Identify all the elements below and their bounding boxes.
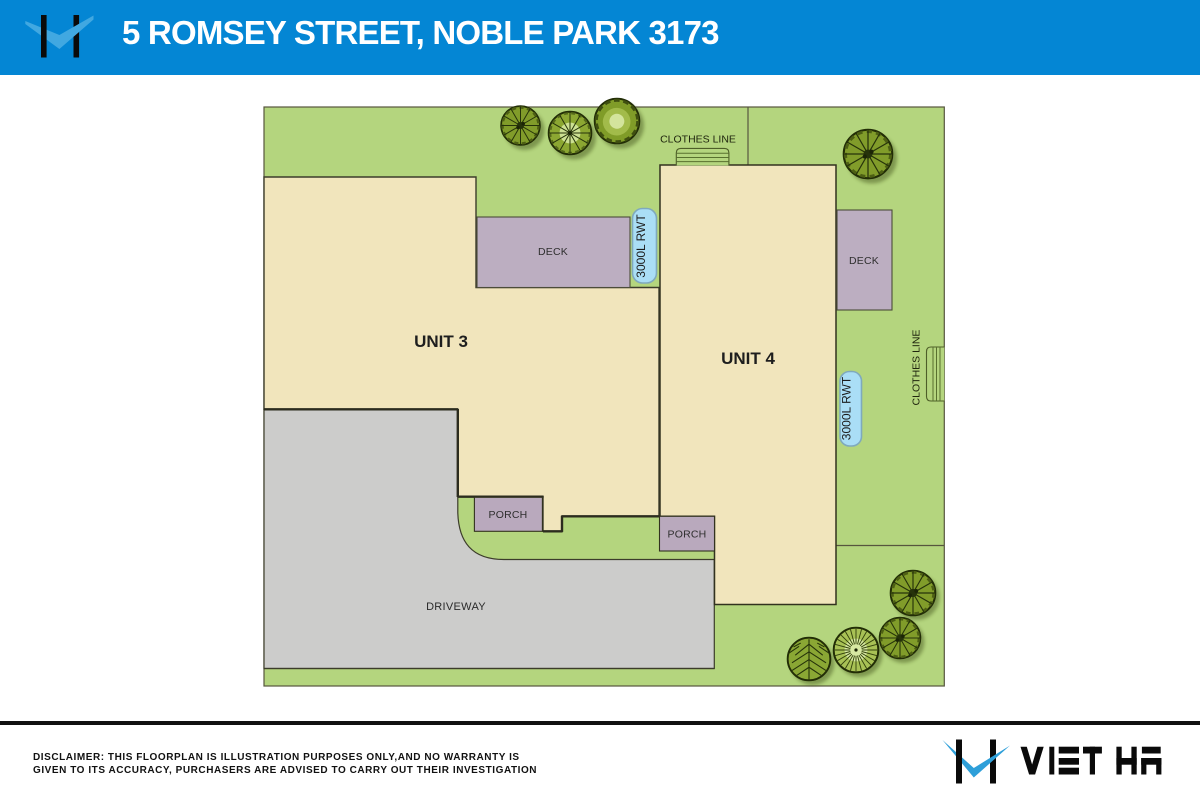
svg-text:UNIT 3: UNIT 3 xyxy=(414,332,468,351)
svg-text:CLOTHES LINE: CLOTHES LINE xyxy=(660,134,736,146)
svg-text:DECK: DECK xyxy=(849,255,879,267)
svg-text:CLOTHES LINE: CLOTHES LINE xyxy=(911,330,923,406)
svg-text:3000L RWT: 3000L RWT xyxy=(634,214,648,278)
svg-text:PORCH: PORCH xyxy=(489,509,528,521)
svg-text:3000L RWT: 3000L RWT xyxy=(840,376,854,440)
svg-text:DECK: DECK xyxy=(538,246,568,258)
svg-text:UNIT 4: UNIT 4 xyxy=(721,349,775,368)
svg-text:PORCH: PORCH xyxy=(668,529,707,541)
svg-text:DRIVEWAY: DRIVEWAY xyxy=(426,601,486,613)
